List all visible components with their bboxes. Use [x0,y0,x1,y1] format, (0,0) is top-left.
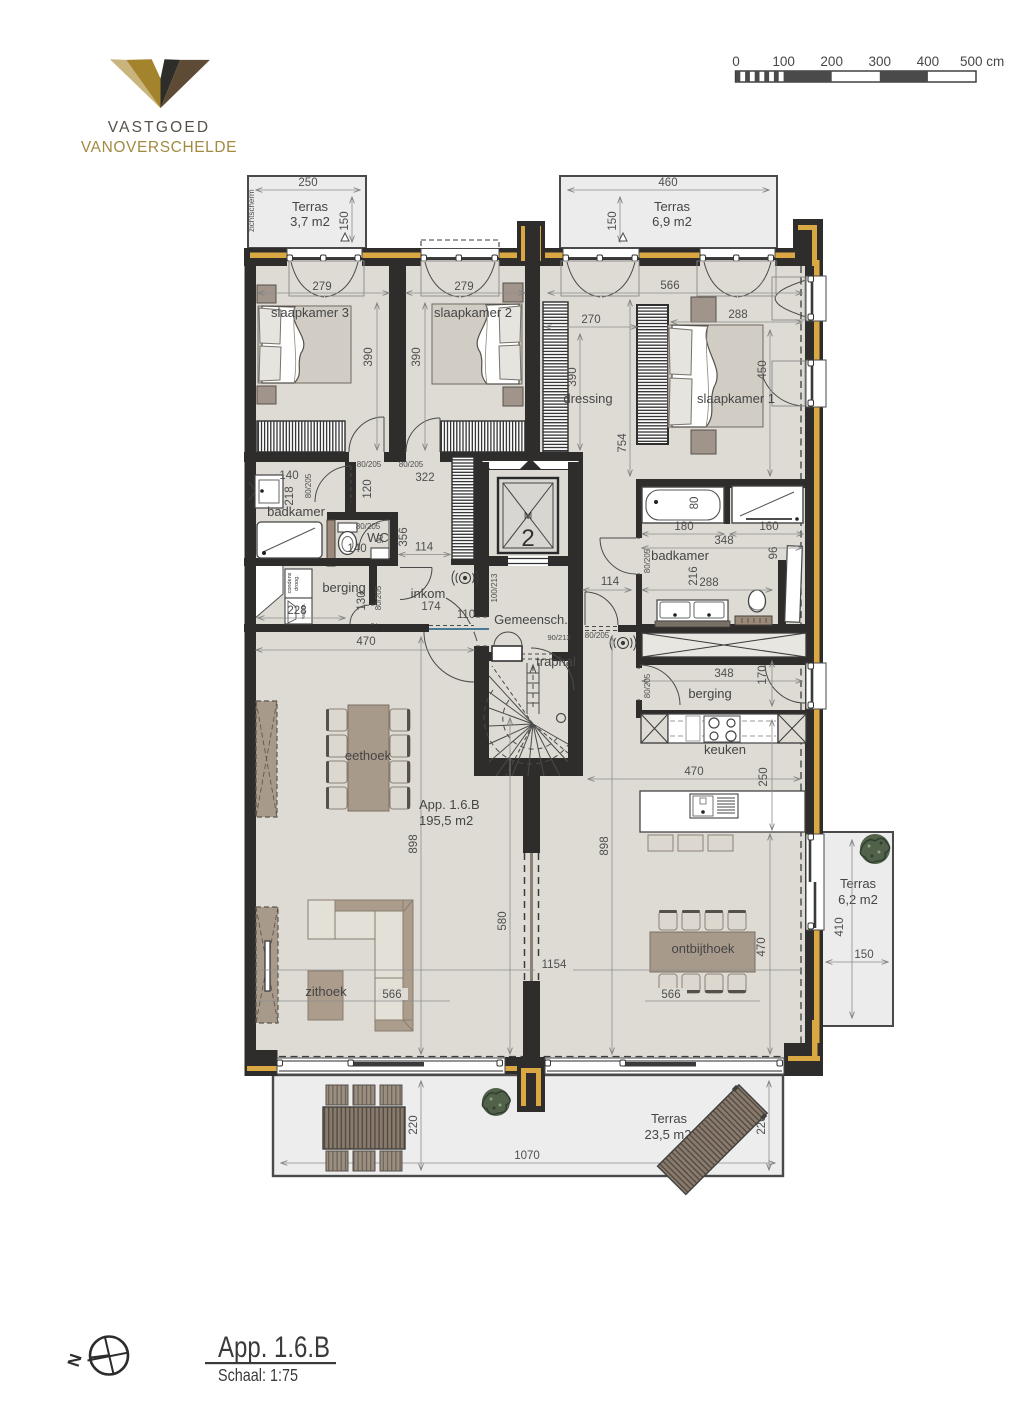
svg-text:390: 390 [567,367,579,386]
svg-text:zithoek: zithoek [305,984,347,999]
svg-text:Schaal: 1:75: Schaal: 1:75 [218,1366,298,1386]
svg-text:174: 174 [421,601,441,613]
svg-text:inkom: inkom [411,586,446,601]
svg-text:356: 356 [398,527,410,546]
svg-text:160: 160 [759,521,778,533]
svg-text:566: 566 [660,280,679,292]
svg-text:348: 348 [714,535,733,547]
svg-text:App. 1.6.B: App. 1.6.B [419,797,480,812]
svg-text:6,2 m2: 6,2 m2 [838,892,878,907]
svg-text:80/205: 80/205 [374,585,383,610]
svg-text:150: 150 [607,211,619,230]
svg-text:566: 566 [661,989,680,1001]
svg-text:288: 288 [699,577,718,589]
svg-text:dressing: dressing [563,391,612,406]
svg-text:Terras: Terras [651,1111,688,1126]
svg-text:470: 470 [356,636,375,648]
svg-text:zichtscherm: zichtscherm [247,189,256,232]
svg-text:110: 110 [457,609,475,621]
svg-text:80/205: 80/205 [585,631,610,640]
svg-text:Terras: Terras [292,199,329,214]
svg-text:80/205: 80/205 [357,460,382,469]
svg-text:WC: WC [367,530,389,545]
svg-text:150: 150 [339,211,351,230]
svg-text:3,7 m2: 3,7 m2 [290,214,330,229]
svg-text:0: 0 [732,54,740,69]
svg-text:250: 250 [758,767,770,786]
svg-text:898: 898 [408,834,420,853]
svg-text:500 cm: 500 cm [960,54,1004,69]
svg-text:Terras: Terras [654,199,691,214]
svg-text:VASTGOED: VASTGOED [108,119,211,136]
svg-text:droog.: droog. [294,575,300,591]
svg-text:218: 218 [284,486,296,505]
svg-text:2: 2 [521,525,534,552]
svg-text:berging: berging [322,580,365,595]
svg-text:270: 270 [581,314,600,326]
svg-text:ontbijthoek: ontbijthoek [672,941,735,956]
svg-text:120: 120 [362,479,374,498]
svg-text:1070: 1070 [514,1150,540,1162]
svg-text:M: M [524,511,532,522]
svg-text:180: 180 [674,521,693,533]
svg-text:450: 450 [757,360,769,379]
svg-text:condens: condens [287,572,293,593]
svg-text:80: 80 [689,497,701,510]
svg-text:140: 140 [347,543,366,555]
svg-text:250: 250 [298,177,317,189]
svg-text:150: 150 [854,949,873,961]
svg-text:100: 100 [772,54,795,69]
svg-text:80/205: 80/205 [399,460,424,469]
svg-text:566: 566 [382,989,401,1001]
svg-text:898: 898 [599,836,611,855]
svg-text:slaapkamer 3: slaapkamer 3 [271,305,349,320]
svg-text:300: 300 [869,54,892,69]
svg-text:badkamer: badkamer [651,548,709,563]
svg-text:80/205: 80/205 [304,473,313,498]
svg-text:220: 220 [408,1115,420,1134]
svg-text:slaapkamer 2: slaapkamer 2 [434,305,512,320]
svg-text:berging: berging [688,686,731,701]
svg-text:Gemeensch.: Gemeensch. [494,612,568,627]
svg-text:470: 470 [684,766,703,778]
svg-text:460: 460 [658,177,677,189]
svg-text:App. 1.6.B: App. 1.6.B [218,1329,330,1363]
svg-text:traphal: traphal [536,654,576,669]
svg-text:114: 114 [601,576,620,588]
svg-text:slaapkamer 1: slaapkamer 1 [697,391,775,406]
svg-text:80/205: 80/205 [643,673,652,698]
svg-text:279: 279 [312,281,331,293]
svg-text:140: 140 [279,470,298,482]
svg-text:580: 580 [497,911,509,930]
svg-text:470: 470 [756,937,768,956]
svg-text:400: 400 [917,54,940,69]
svg-text:170: 170 [757,665,769,684]
svg-text:390: 390 [411,347,423,366]
svg-text:754: 754 [617,433,629,453]
svg-text:279: 279 [454,281,473,293]
svg-text:Terras: Terras [840,876,877,891]
svg-text:badkamer: badkamer [267,504,325,519]
svg-text:1154: 1154 [542,959,567,971]
svg-text:6,9 m2: 6,9 m2 [652,214,692,229]
svg-text:348: 348 [714,668,733,680]
svg-text:322: 322 [415,472,434,484]
svg-text:114: 114 [415,542,434,554]
svg-text:100/213: 100/213 [490,573,499,602]
svg-text:VANOVERSCHELDE: VANOVERSCHELDE [81,139,237,156]
svg-text:96: 96 [768,547,780,560]
svg-text:216: 216 [688,566,700,585]
svg-text:288: 288 [728,309,747,321]
svg-text:eethoek: eethoek [345,748,392,763]
svg-text:keuken: keuken [704,742,746,757]
svg-text:200: 200 [820,54,843,69]
svg-text:410: 410 [834,917,846,936]
svg-text:195,5 m2: 195,5 m2 [419,813,473,828]
svg-text:228: 228 [287,605,306,617]
svg-text:90/213: 90/213 [548,633,571,642]
svg-text:390: 390 [363,347,375,366]
